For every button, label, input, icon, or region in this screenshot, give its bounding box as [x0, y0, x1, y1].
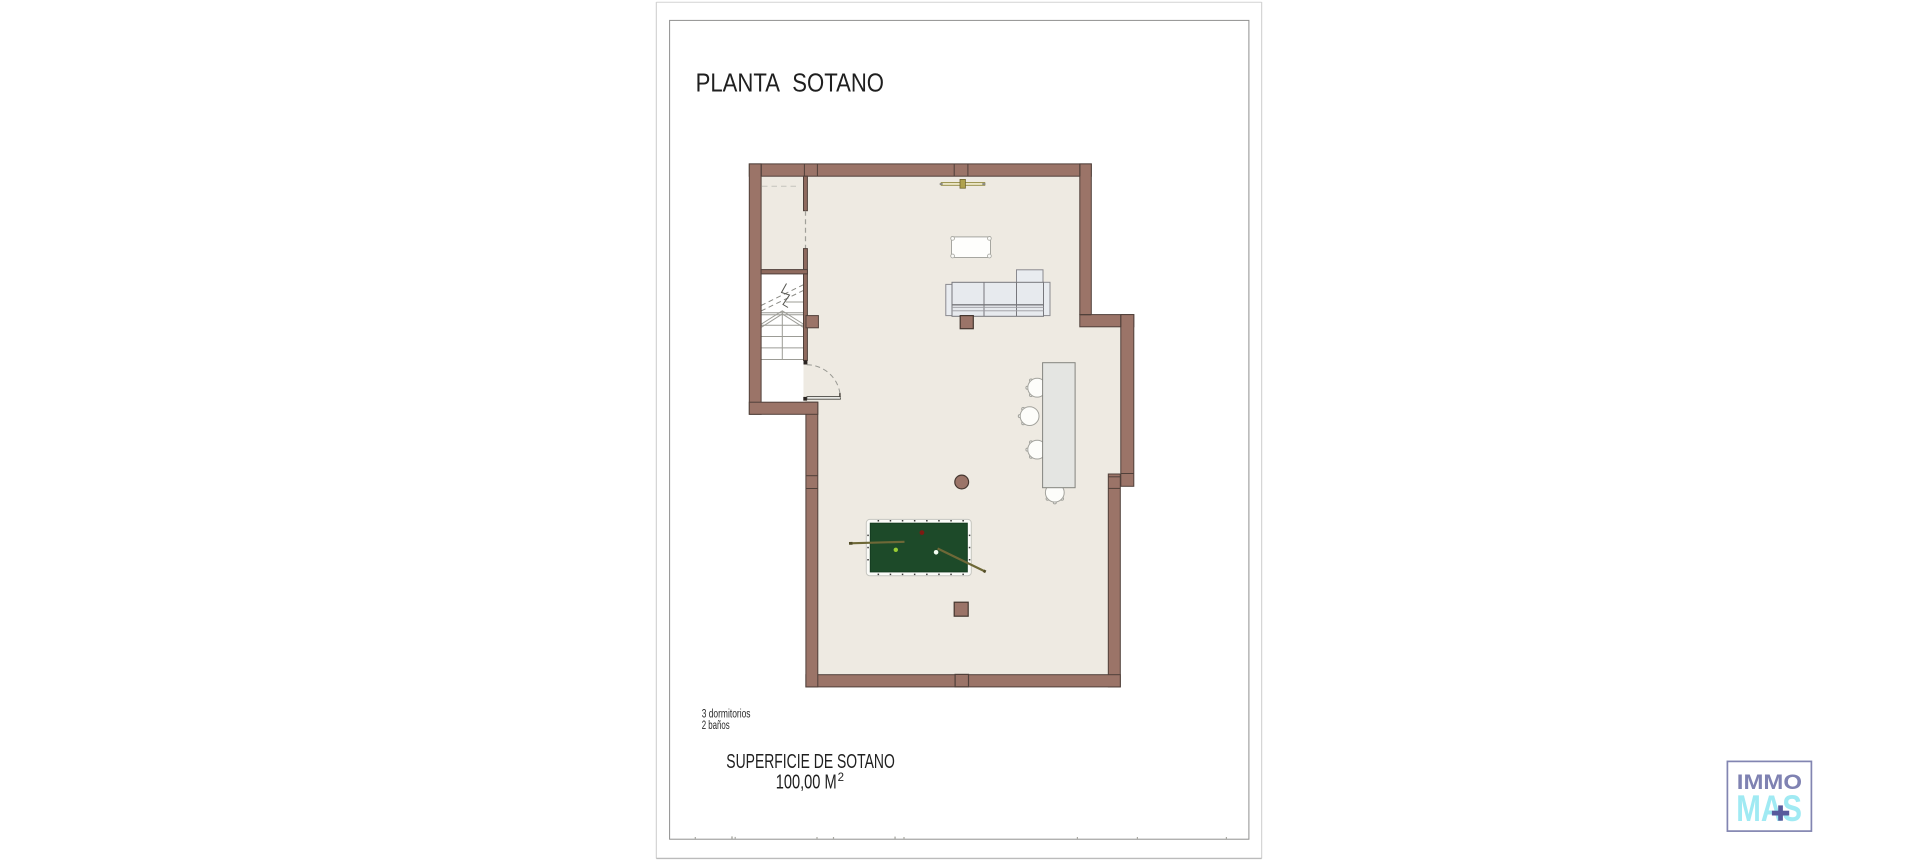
svg-text:2 baños: 2 baños: [702, 720, 730, 732]
svg-text:MAS: MAS: [1736, 788, 1802, 829]
svg-text:PLANTA SOTANO: PLANTA SOTANO: [696, 67, 884, 97]
svg-text:100,00 M: 100,00 M: [776, 771, 837, 794]
svg-text:2: 2: [838, 772, 844, 784]
